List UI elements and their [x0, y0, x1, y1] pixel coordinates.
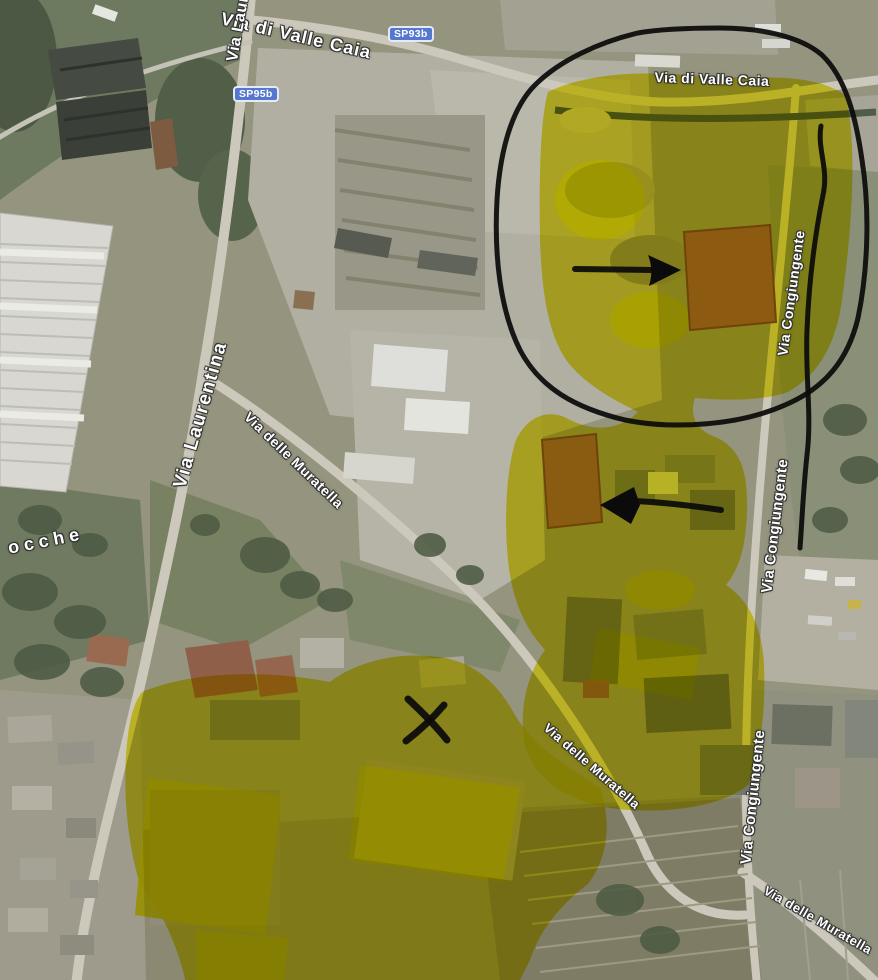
map-canvas[interactable]: Via di Valle Caia Via Laurentina Via di … [0, 0, 878, 980]
satellite-image [0, 0, 878, 980]
brown-building-upper [684, 225, 776, 330]
arrow-right-shaft [575, 269, 652, 270]
route-badge-sp95b: SP95b [233, 86, 279, 102]
route-badge-sp93b: SP93b [388, 26, 434, 42]
brown-building-middle [542, 434, 602, 528]
